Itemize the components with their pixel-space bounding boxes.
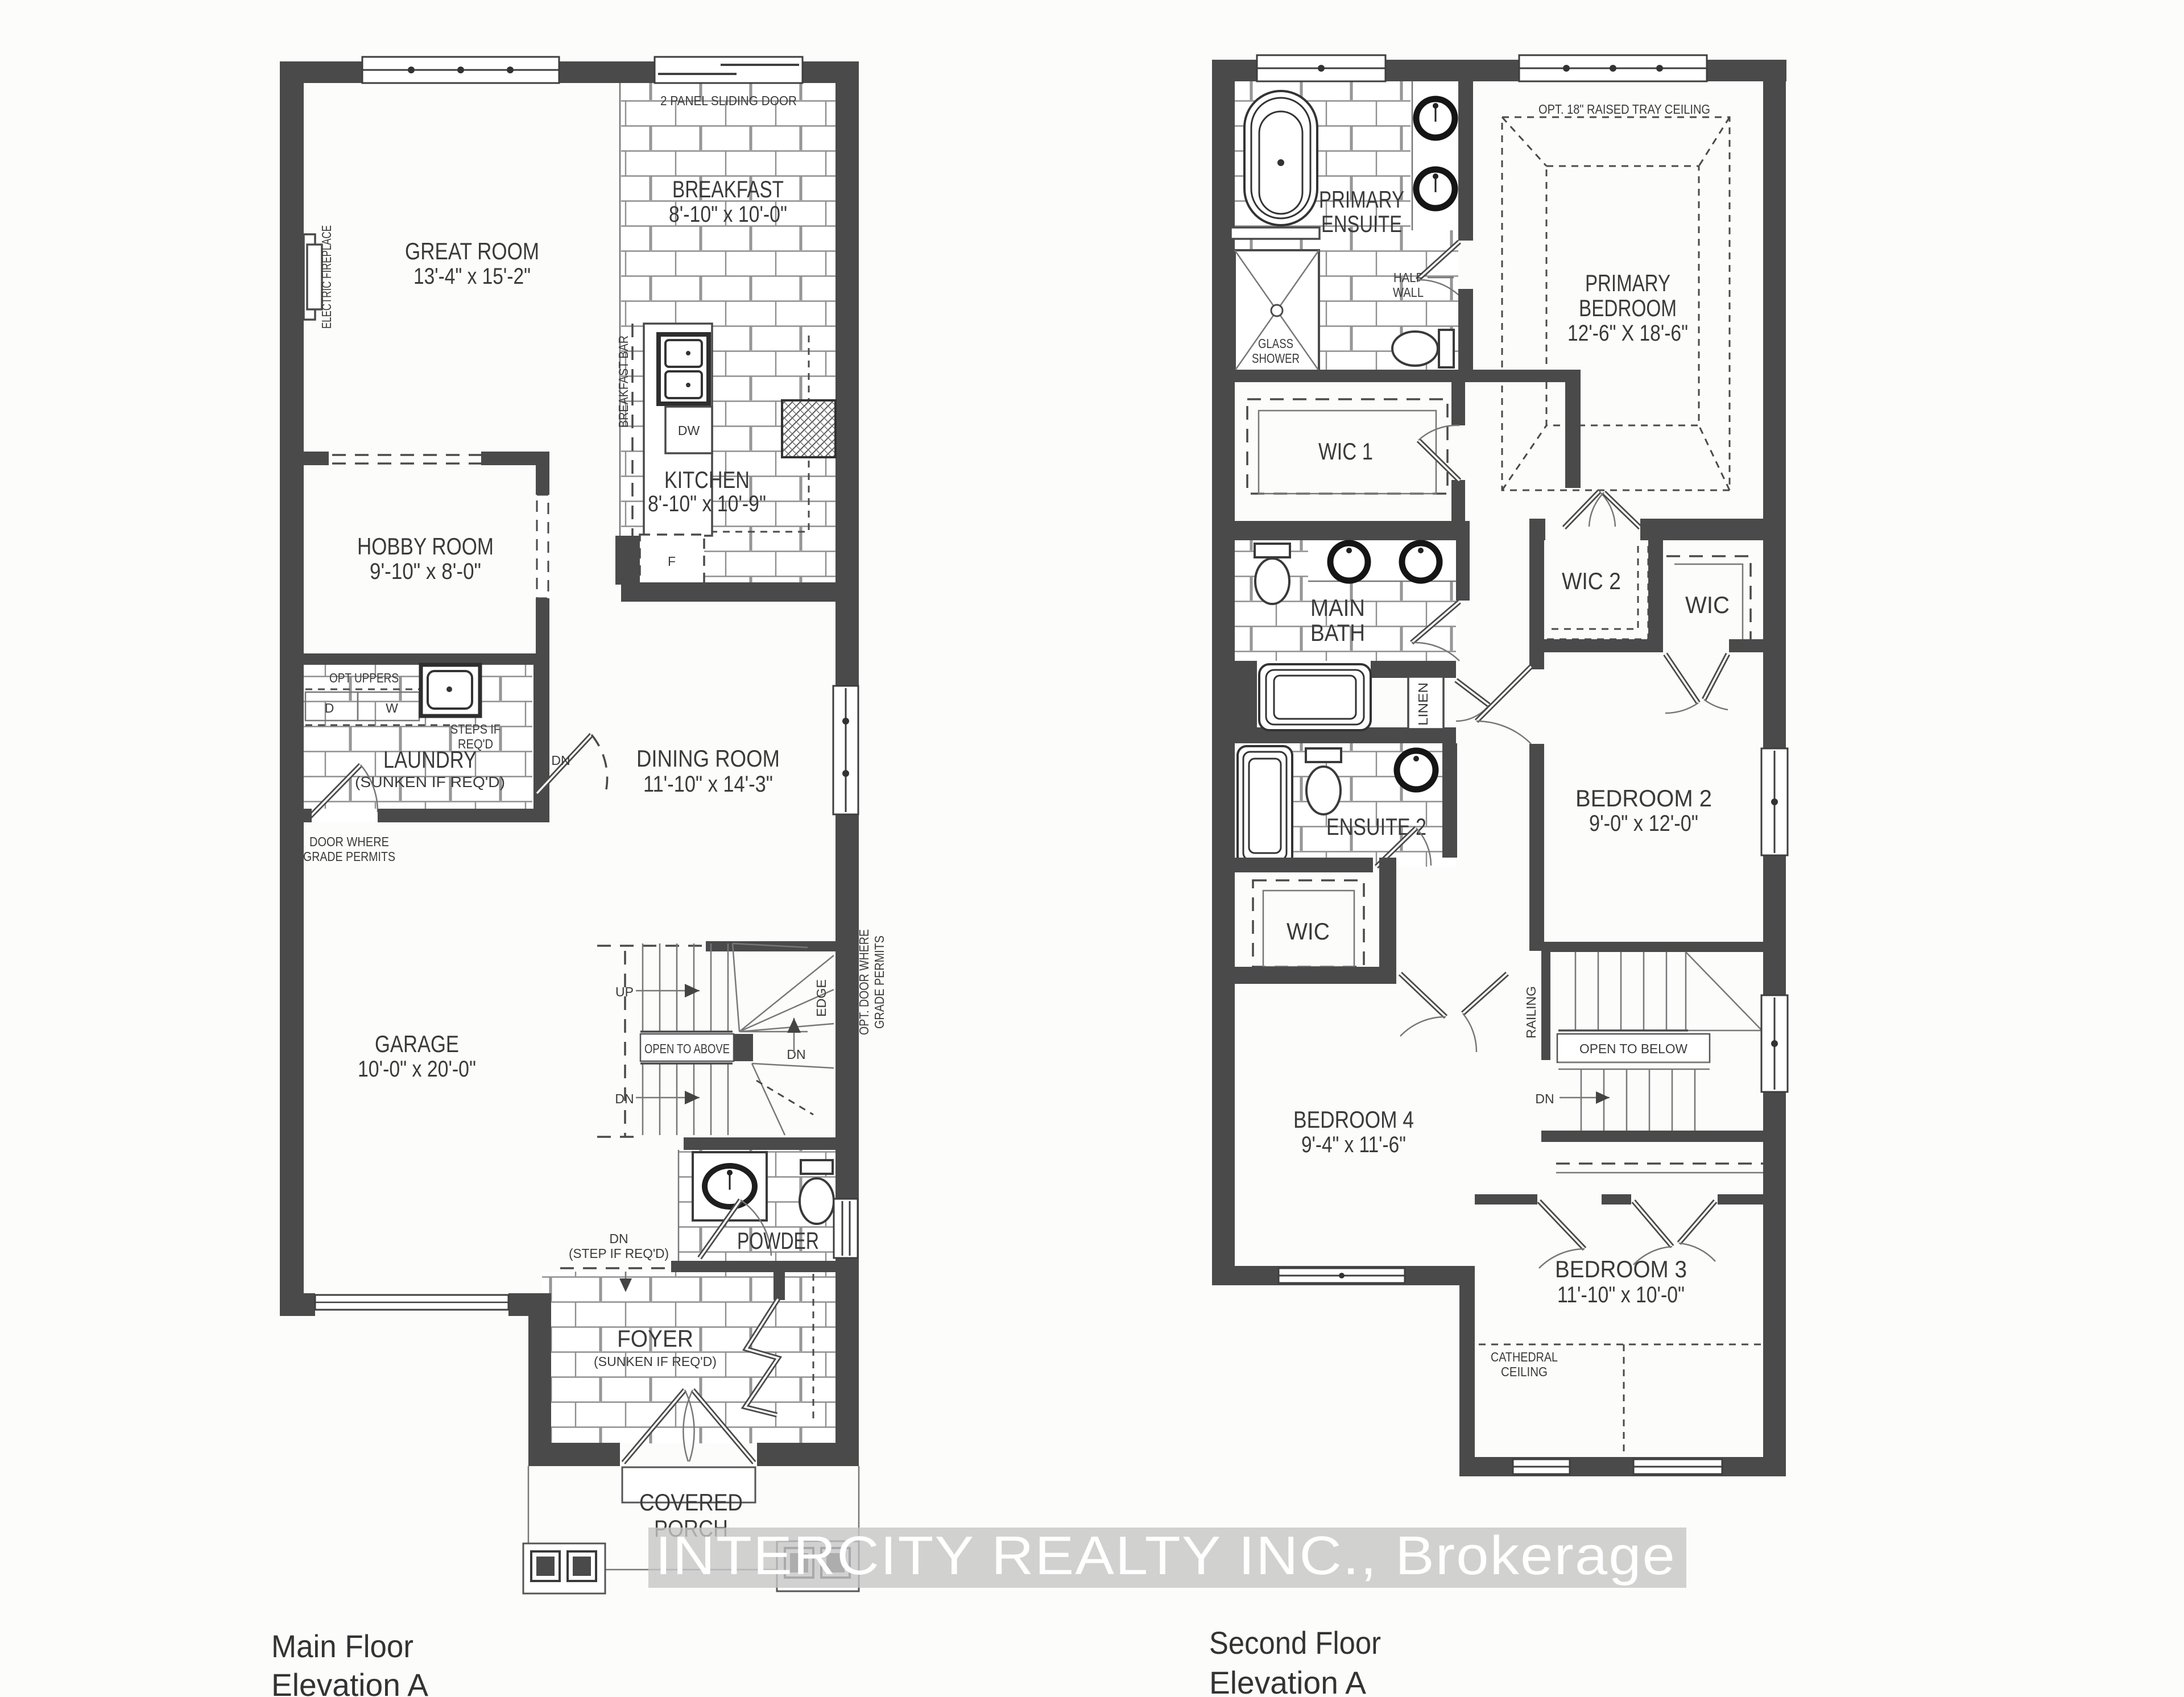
svg-text:DN: DN bbox=[609, 1231, 628, 1246]
svg-text:PRIMARY: PRIMARY bbox=[1319, 186, 1404, 213]
svg-text:BEDROOM 3: BEDROOM 3 bbox=[1555, 1256, 1687, 1282]
svg-text:11'-10" x 14'-3": 11'-10" x 14'-3" bbox=[643, 772, 773, 797]
svg-text:SHOWER: SHOWER bbox=[1252, 351, 1300, 366]
svg-text:BREAKFAST BAR: BREAKFAST BAR bbox=[616, 336, 631, 428]
svg-text:(SUNKEN IF REQ'D): (SUNKEN IF REQ'D) bbox=[594, 1354, 717, 1369]
svg-text:Main Floor: Main Floor bbox=[271, 1628, 413, 1664]
svg-text:CEILING: CEILING bbox=[1501, 1364, 1548, 1379]
svg-text:GARAGE: GARAGE bbox=[375, 1030, 459, 1057]
svg-text:OPT. DOOR WHERE: OPT. DOOR WHERE bbox=[857, 929, 871, 1035]
svg-text:DOOR WHERE: DOOR WHERE bbox=[309, 834, 389, 849]
svg-text:EDGE: EDGE bbox=[814, 979, 829, 1017]
svg-text:LAUNDRY: LAUNDRY bbox=[383, 746, 477, 773]
svg-text:ENSUITE: ENSUITE bbox=[1321, 210, 1402, 237]
svg-text:(SUNKEN IF REQ'D): (SUNKEN IF REQ'D) bbox=[355, 773, 505, 790]
svg-text:OPT UPPERS: OPT UPPERS bbox=[329, 670, 399, 685]
svg-text:BEDROOM 2: BEDROOM 2 bbox=[1575, 785, 1712, 812]
svg-text:GLASS: GLASS bbox=[1258, 336, 1293, 351]
svg-text:8'-10" x 10'-0": 8'-10" x 10'-0" bbox=[669, 202, 787, 227]
svg-text:DINING ROOM: DINING ROOM bbox=[636, 745, 780, 772]
svg-text:LINEN: LINEN bbox=[1416, 682, 1430, 726]
svg-text:HOBBY ROOM: HOBBY ROOM bbox=[357, 533, 494, 560]
svg-text:MAIN: MAIN bbox=[1310, 594, 1365, 621]
svg-text:8'-10" x 10'-9": 8'-10" x 10'-9" bbox=[648, 491, 766, 516]
svg-text:WIC 2: WIC 2 bbox=[1562, 568, 1621, 594]
svg-text:WALL: WALL bbox=[1393, 285, 1424, 300]
svg-text:GRADE PERMITS: GRADE PERMITS bbox=[872, 936, 887, 1029]
svg-text:BEDROOM 4: BEDROOM 4 bbox=[1293, 1106, 1414, 1133]
svg-text:DN: DN bbox=[551, 753, 570, 768]
svg-text:OPT. 18" RAISED TRAY CEILING: OPT. 18" RAISED TRAY CEILING bbox=[1538, 102, 1710, 117]
svg-text:F: F bbox=[668, 554, 676, 569]
svg-text:STEPS IF: STEPS IF bbox=[450, 722, 500, 736]
svg-text:10'-0" x 20'-0": 10'-0" x 20'-0" bbox=[358, 1057, 476, 1082]
svg-text:Second Floor: Second Floor bbox=[1209, 1625, 1381, 1661]
svg-text:GRADE PERMITS: GRADE PERMITS bbox=[303, 849, 395, 864]
svg-text:WIC: WIC bbox=[1685, 591, 1730, 618]
svg-text:FOYER: FOYER bbox=[617, 1325, 693, 1352]
svg-text:W: W bbox=[386, 701, 398, 715]
svg-text:12'-6" X 18'-6": 12'-6" X 18'-6" bbox=[1567, 321, 1688, 346]
svg-text:ELECTRIC FIREPLACE: ELECTRIC FIREPLACE bbox=[319, 225, 334, 329]
svg-text:WIC 1: WIC 1 bbox=[1318, 438, 1373, 465]
svg-text:9'-0" x 12'-0": 9'-0" x 12'-0" bbox=[1589, 811, 1698, 836]
svg-text:WIC: WIC bbox=[1287, 918, 1330, 945]
svg-text:D: D bbox=[325, 701, 334, 715]
svg-text:DN: DN bbox=[787, 1047, 805, 1062]
svg-text:KITCHEN: KITCHEN bbox=[664, 466, 750, 493]
svg-text:DN: DN bbox=[1535, 1091, 1554, 1106]
svg-text:11'-10" x 10'-0": 11'-10" x 10'-0" bbox=[1557, 1282, 1685, 1307]
svg-text:BATH: BATH bbox=[1310, 619, 1365, 646]
svg-text:13'-4" x 15'-2": 13'-4" x 15'-2" bbox=[413, 264, 531, 289]
svg-text:2 PANEL SLIDING DOOR: 2 PANEL SLIDING DOOR bbox=[660, 93, 797, 108]
svg-text:9'-10" x 8'-0": 9'-10" x 8'-0" bbox=[370, 559, 481, 584]
svg-text:DW: DW bbox=[678, 423, 700, 438]
svg-text:PRIMARY: PRIMARY bbox=[1585, 270, 1670, 296]
svg-text:BEDROOM: BEDROOM bbox=[1579, 295, 1677, 321]
svg-text:RAILING: RAILING bbox=[1524, 986, 1538, 1038]
svg-text:OPEN TO BELOW: OPEN TO BELOW bbox=[1579, 1041, 1687, 1056]
svg-text:Elevation A: Elevation A bbox=[271, 1667, 429, 1697]
svg-text:COVERED: COVERED bbox=[639, 1489, 743, 1516]
svg-text:Elevation A: Elevation A bbox=[1209, 1665, 1367, 1697]
svg-text:(STEP IF REQ'D): (STEP IF REQ'D) bbox=[569, 1246, 669, 1261]
svg-text:9'-4" x 11'-6": 9'-4" x 11'-6" bbox=[1301, 1132, 1406, 1157]
svg-text:GREAT ROOM: GREAT ROOM bbox=[405, 238, 539, 264]
svg-text:INTERCITY REALTY INC., Broker: INTERCITY REALTY INC., Brokerage bbox=[655, 1525, 1676, 1586]
svg-text:BREAKFAST: BREAKFAST bbox=[672, 176, 784, 202]
svg-text:HALF: HALF bbox=[1393, 270, 1423, 285]
svg-text:OPEN TO ABOVE: OPEN TO ABOVE bbox=[644, 1041, 730, 1056]
svg-text:CATHEDRAL: CATHEDRAL bbox=[1491, 1350, 1558, 1364]
svg-text:POWDER: POWDER bbox=[737, 1227, 819, 1254]
